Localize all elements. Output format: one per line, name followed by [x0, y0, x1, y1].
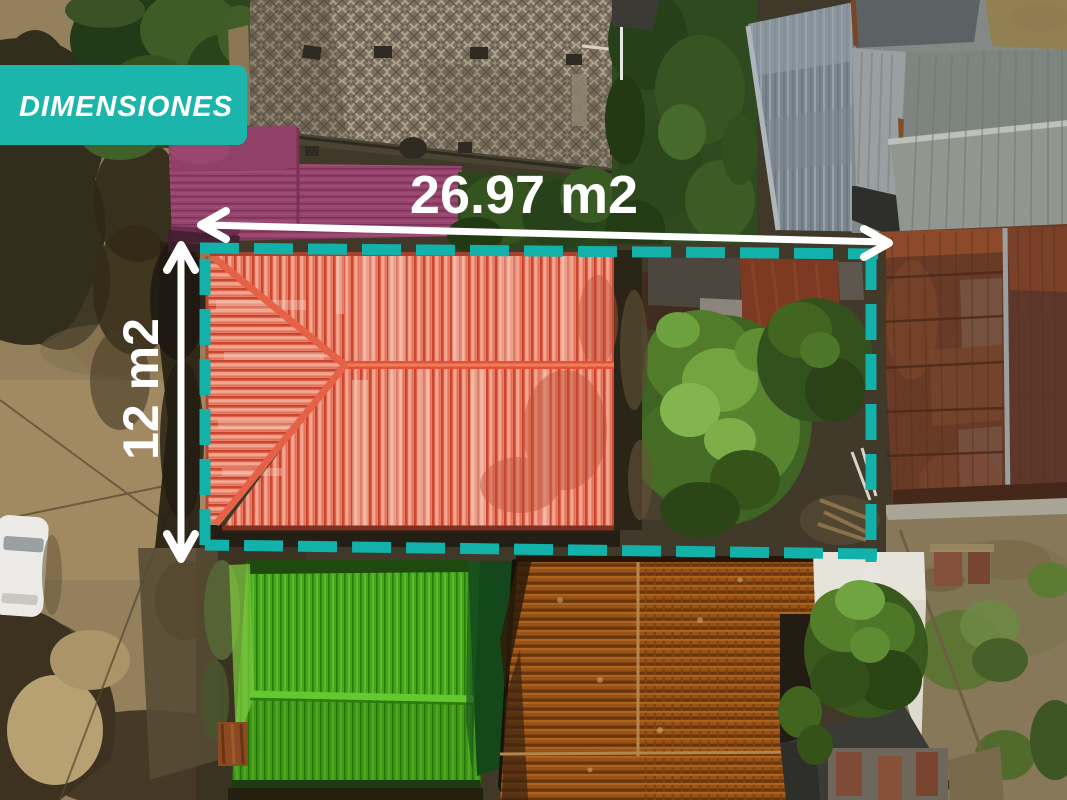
svg-text:DIMENSIONES: DIMENSIONES	[19, 91, 233, 123]
svg-text:26.97 m2: 26.97 m2	[410, 165, 638, 225]
svg-text:12 m2: 12 m2	[113, 318, 169, 460]
